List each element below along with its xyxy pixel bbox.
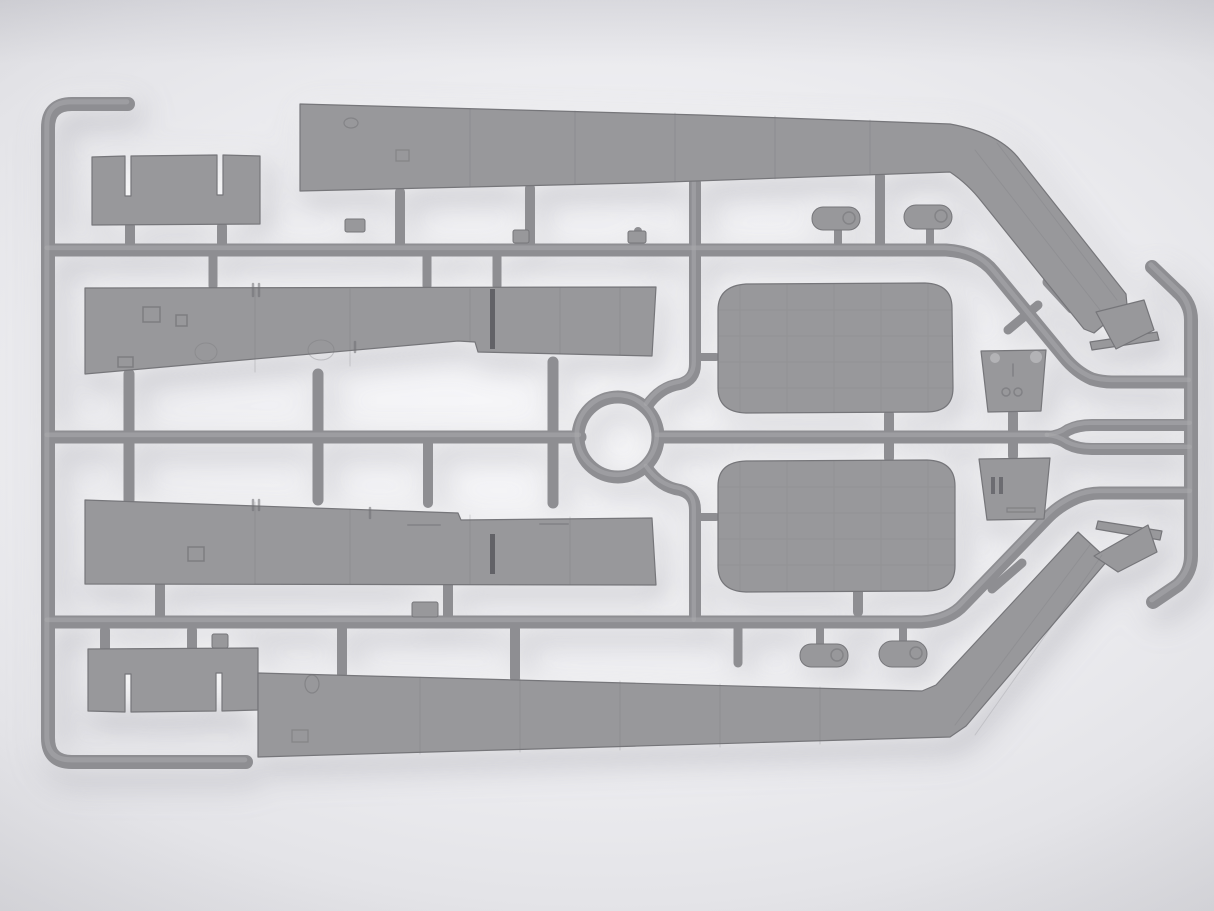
molding-block (513, 230, 529, 243)
flap-part-top-left (92, 155, 260, 225)
molding-block (345, 219, 365, 232)
molding-block (628, 231, 646, 243)
small-fairing-part (879, 641, 927, 667)
small-fairing-part (812, 207, 860, 230)
molding-block (412, 602, 438, 617)
bulkhead-lower (979, 458, 1050, 520)
flap-part-bottom-left (88, 648, 258, 712)
small-fairing-part (800, 644, 848, 667)
nacelle-half-upper (718, 283, 953, 413)
mold-slit (490, 289, 495, 349)
small-fairing-part (904, 205, 952, 229)
molding-block (212, 634, 228, 648)
photo-stage (0, 0, 1214, 911)
mold-slit (490, 534, 495, 574)
nacelle-half-lower (718, 460, 955, 592)
center-ring-highlight (577, 395, 657, 475)
sprue-photo (0, 0, 1214, 911)
wing-panel-middle-upper (85, 287, 656, 374)
right-rail (1152, 267, 1191, 602)
